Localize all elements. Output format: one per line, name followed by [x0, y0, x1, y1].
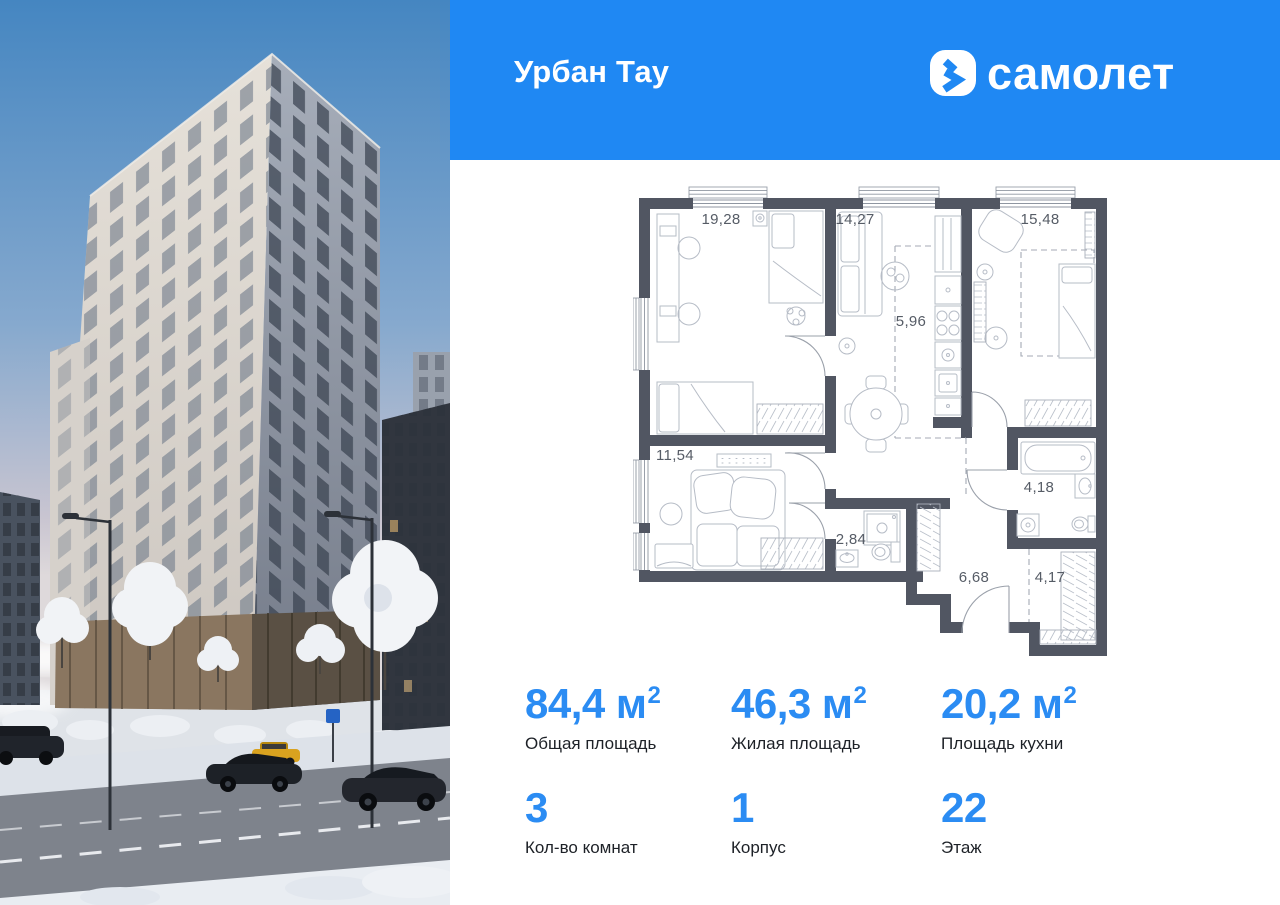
apartment-stats: 84,4 м2 Общая площадь 46,3 м2 Жилая площ…: [525, 683, 1076, 858]
washing-machine: [1017, 514, 1039, 536]
samolet-logo-icon: [930, 50, 976, 96]
floor-plan: 19,28 14,27 15,48 5,96 11,54 2,84 4,18 6…: [633, 186, 1111, 668]
dark-building-left: [0, 492, 40, 705]
stat-label: Этаж: [941, 838, 1076, 858]
wardrobe-hatch: [761, 538, 823, 569]
doors: [785, 336, 1009, 633]
radiator: [1085, 212, 1095, 258]
tall-cabinet: [974, 282, 986, 342]
vanity-sink: [1075, 474, 1095, 498]
room-area-label: 4,18: [1024, 479, 1054, 496]
round-mirror: [660, 503, 682, 525]
stat-value: 3: [525, 787, 731, 829]
stat-building: 1 Корпус: [731, 787, 941, 858]
room-area-label: 11,54: [656, 447, 694, 464]
bathtub: [1021, 442, 1095, 474]
stat-value: 84,4 м2: [525, 683, 731, 725]
bed: [769, 211, 823, 303]
floor-lamp: [839, 338, 855, 354]
stat-kitchen-area: 20,2 м2 Площадь кухни: [941, 683, 1076, 754]
room-area-label: 2,84: [836, 531, 866, 548]
toilet: [1072, 516, 1095, 532]
stat-label: Корпус: [731, 838, 941, 858]
stat-label: Площадь кухни: [941, 734, 1076, 754]
floor-lamp: [977, 264, 993, 280]
stat-living-area: 46,3 м2 Жилая площадь: [731, 683, 941, 754]
wardrobe-hatch: [1040, 630, 1096, 644]
side-table: [985, 327, 1007, 349]
room-area-label: 5,96: [896, 313, 926, 330]
stat-value: 1: [731, 787, 941, 829]
wardrobe-hatch: [917, 504, 940, 571]
sink: [836, 550, 858, 567]
room-area-label: 4,17: [1035, 569, 1065, 586]
wardrobe-hatch: [757, 404, 823, 434]
plant: [787, 307, 805, 325]
room-area-label: 19,28: [701, 211, 740, 228]
stat-value: 22: [941, 787, 1076, 829]
brand-name: самолет: [987, 51, 1175, 96]
shower-cabin: [864, 511, 900, 545]
armchair: [975, 206, 1027, 256]
shelf: [717, 454, 771, 467]
stat-value: 20,2 м2: [941, 683, 1076, 725]
building-photo: [0, 0, 450, 905]
toilet: [872, 542, 900, 562]
nightstand: [753, 211, 767, 226]
desk: [657, 214, 700, 342]
dining-table: [845, 376, 908, 452]
stat-label: Жилая площадь: [731, 734, 941, 754]
stat-label: Общая площадь: [525, 734, 731, 754]
room-area-label: 15,48: [1020, 211, 1059, 228]
console: [655, 544, 693, 568]
bed: [657, 382, 753, 434]
header: Урбан Тау самолет: [450, 0, 1280, 160]
wardrobe-hatch: [1061, 552, 1095, 640]
stat-value: 46,3 м2: [731, 683, 941, 725]
room-area-label: 14,27: [835, 211, 874, 228]
listing-card: Урбан Тау самолет: [0, 0, 1280, 905]
project-title: Урбан Тау: [514, 54, 669, 90]
stat-label: Кол-во комнат: [525, 838, 731, 858]
stat-total-area: 84,4 м2 Общая площадь: [525, 683, 731, 754]
kitchen-units: [935, 216, 961, 415]
stat-rooms-count: 3 Кол-во комнат: [525, 787, 731, 858]
info-panel: Урбан Тау самолет: [450, 0, 1280, 905]
stat-floor: 22 Этаж: [941, 787, 1076, 858]
wardrobe-hatch: [1025, 400, 1091, 426]
brand-logo: самолет: [930, 50, 1175, 96]
room-area-label: 6,68: [959, 569, 989, 586]
bed: [1059, 264, 1095, 358]
